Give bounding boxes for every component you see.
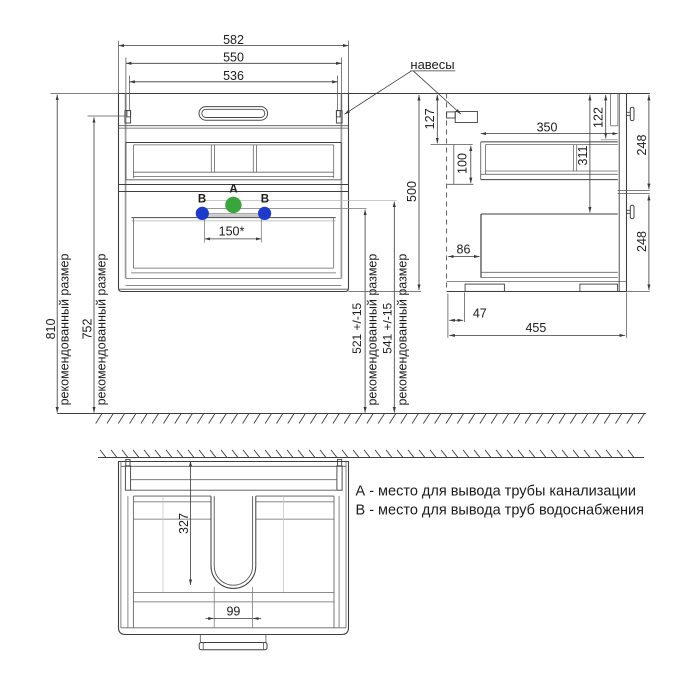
svg-text:521 +/-15: 521 +/-15 [350,302,364,353]
svg-text:248: 248 [635,231,649,252]
svg-text:150*: 150* [219,225,245,239]
svg-text:248: 248 [635,135,649,156]
svg-text:рекомендованный размер: рекомендованный размер [395,254,409,406]
svg-text:122: 122 [592,107,606,128]
svg-text:рекомендованный размер: рекомендованный размер [94,254,108,406]
svg-text:455: 455 [525,321,546,335]
svg-text:В: В [261,194,269,206]
svg-text:536: 536 [223,69,244,83]
svg-text:навесы: навесы [410,57,454,72]
svg-text:582: 582 [223,33,244,47]
svg-text:541 +/-15: 541 +/-15 [380,302,394,353]
svg-text:752: 752 [81,319,95,340]
svg-text:99: 99 [226,604,240,618]
svg-text:100: 100 [456,153,470,174]
svg-text:327: 327 [177,513,191,534]
svg-text:86: 86 [457,242,471,256]
svg-text:500: 500 [405,181,419,202]
svg-text:рекомендованный размер: рекомендованный размер [58,254,72,406]
svg-text:350: 350 [537,120,558,134]
svg-text:127: 127 [423,108,437,129]
svg-text:47: 47 [473,306,487,320]
svg-text:810: 810 [44,319,58,340]
svg-text:550: 550 [223,50,244,64]
svg-text:311: 311 [576,145,590,165]
svg-text:рекомендованный размер: рекомендованный размер [366,254,380,406]
svg-text:А: А [229,183,237,195]
svg-text:В - место для вывода труб водо: В - место для вывода труб водоснабжения [356,502,644,518]
svg-text:А - место для вывода трубы кан: А - место для вывода трубы канализации [356,484,636,500]
svg-text:В: В [198,194,206,206]
